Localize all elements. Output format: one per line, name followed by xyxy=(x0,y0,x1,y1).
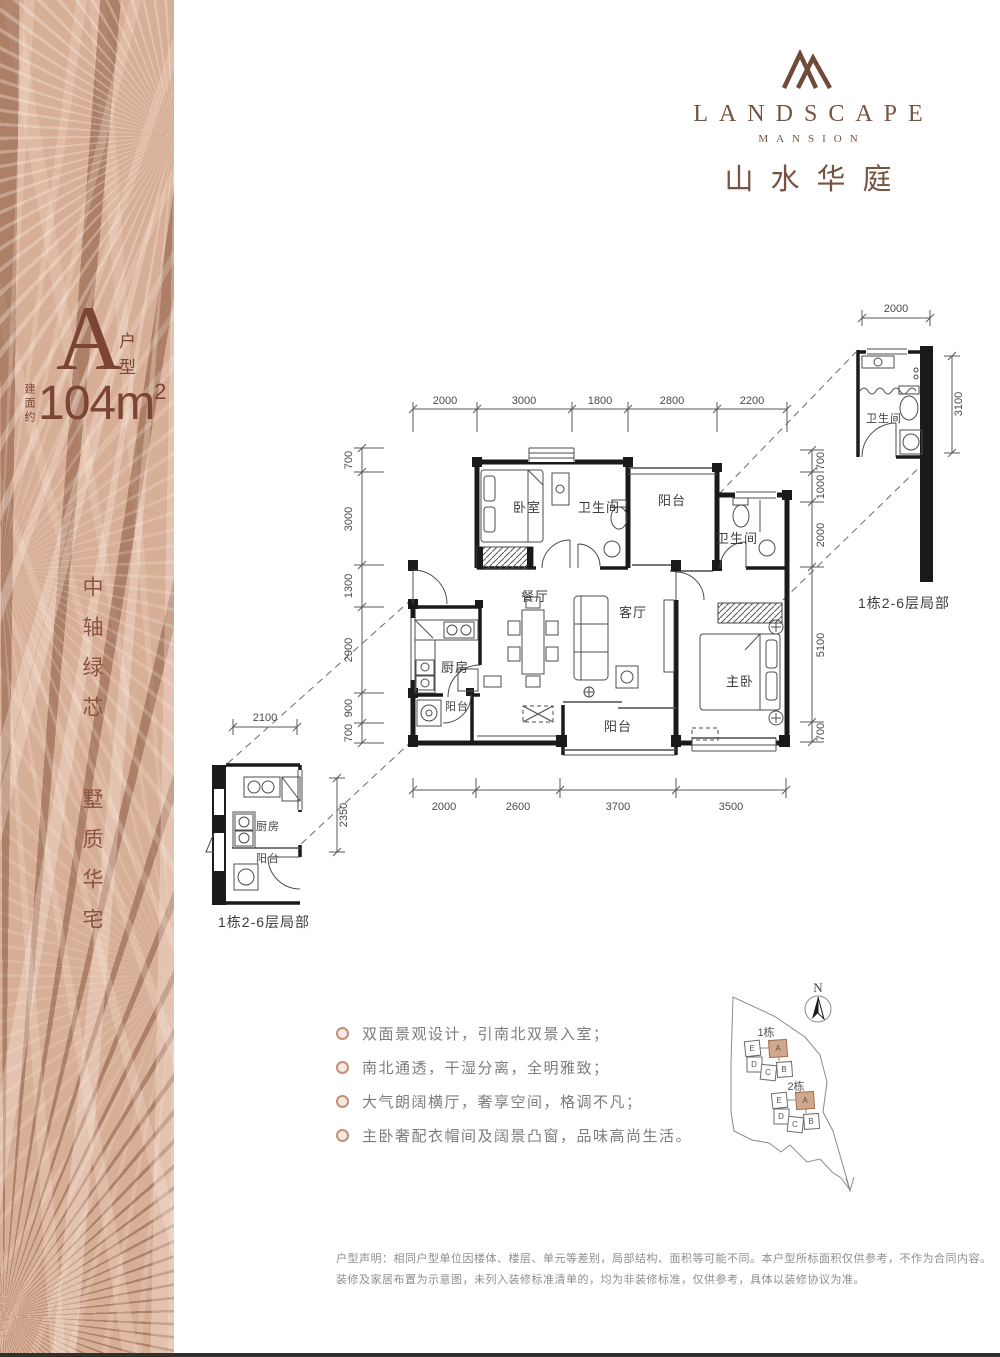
north-label: N xyxy=(813,980,823,995)
room-label-balcony-bottom: 阳台 xyxy=(604,719,632,734)
detail-kitchen: 厨房 阳台 2100 2350 1栋2-6层局部 xyxy=(206,712,350,930)
dim-label: 900 xyxy=(343,699,355,717)
dim-label: 2000 xyxy=(884,303,908,315)
dim-label: 2900 xyxy=(343,638,355,662)
feature-text: 主卧奢配衣帽间及阔景凸窗，品味高尚生活。 xyxy=(362,1125,692,1146)
dim-label: 2000 xyxy=(433,395,457,407)
dim-label: 1000 xyxy=(815,475,827,499)
north-arrow-icon xyxy=(812,997,818,1019)
dim-label: 3500 xyxy=(719,801,743,813)
detail-room-label: 卫生间 xyxy=(866,411,902,425)
dim-label: 700 xyxy=(343,451,355,469)
dimensions-right: 700 1000 2000 5100 700 xyxy=(800,446,827,746)
feature-text: 南北通透，干湿分离，全明雅致； xyxy=(362,1057,610,1078)
disclaimer-line-1: 户型声明：相同户型单位因楼体、楼层、单元等差别，局部结构、面积等可能不同。本户型… xyxy=(336,1249,998,1270)
site-map: N 1栋 E D C B A 2栋 E xyxy=(731,980,854,1191)
unit-letter-d: D xyxy=(751,1060,757,1069)
dim-label: 3000 xyxy=(512,395,536,407)
dimensions-bottom: 2000 2600 3700 3500 xyxy=(409,778,790,813)
disclaimer: 户型声明：相同户型单位因楼体、楼层、单元等差别，局部结构、面积等可能不同。本户型… xyxy=(336,1249,998,1291)
room-label-dining: 餐厅 xyxy=(521,589,549,604)
dim-label: 2000 xyxy=(432,801,456,813)
room-label-bedroom: 卧室 xyxy=(513,500,541,515)
unit-letter-b: B xyxy=(781,1065,786,1074)
feature-item: 南北通透，干湿分离，全明雅致； xyxy=(336,1050,692,1084)
detail-caption: 1栋2-6层局部 xyxy=(858,595,950,611)
feature-item: 双面景观设计，引南北双景入室； xyxy=(336,1016,692,1050)
room-labels: 卧室 卫生间 阳台 卫生间 餐厅 客厅 厨房 阳台 阳台 主卧 xyxy=(441,493,758,734)
room-label-kitchen: 厨房 xyxy=(441,660,469,675)
bottom-border xyxy=(0,1353,1000,1357)
dim-label: 700 xyxy=(343,724,355,742)
detail-room-label: 厨房 xyxy=(256,820,280,833)
feature-text: 大气朗阔横厅，奢享空间，格调不凡； xyxy=(362,1091,643,1112)
page: A 户型 建面约 104m2 中轴绿芯 墅质华宅 LANDSCAPE MANSI… xyxy=(0,0,1000,1357)
disclaimer-line-2: 装修及家居布置为示意图，未列入装修标准清单的，均为非装修标准，仅供参考，具体以装… xyxy=(336,1270,998,1291)
feature-list: 双面景观设计，引南北双景入室； 南北通透，干湿分离，全明雅致； 大气朗阔横厅，奢… xyxy=(336,1016,692,1152)
dim-label: 3100 xyxy=(953,392,965,416)
dim-label: 2200 xyxy=(740,395,764,407)
unit-letter-d: D xyxy=(778,1112,784,1121)
room-label-master: 主卧 xyxy=(726,674,754,689)
dim-label: 2600 xyxy=(506,801,530,813)
dim-label: 2800 xyxy=(660,395,684,407)
dim-label: 2100 xyxy=(253,712,277,724)
detail-bathroom: 卫生间 2000 3100 1栋2-6层局部 xyxy=(858,303,965,611)
room-label-balcony-top: 阳台 xyxy=(658,493,686,508)
unit-letter-a: A xyxy=(775,1044,781,1053)
dimensions-top: 2000 3000 1800 2800 2200 xyxy=(409,395,791,432)
bullet-icon xyxy=(336,1027,349,1040)
dimensions-left: 700 3000 1300 2900 900 700 xyxy=(343,444,384,747)
door-arcs xyxy=(413,540,746,723)
bullet-icon xyxy=(336,1095,349,1108)
dim-label: 2000 xyxy=(815,523,827,547)
unit-letter-e: E xyxy=(749,1044,754,1053)
building2-label: 2栋 xyxy=(787,1079,804,1093)
unit-letter-b: B xyxy=(808,1117,813,1126)
feature-item: 大气朗阔横厅，奢享空间，格调不凡； xyxy=(336,1084,692,1118)
feature-item: 主卧奢配衣帽间及阔景凸窗，品味高尚生活。 xyxy=(336,1118,692,1152)
floor-plan-drawing: 卧室 卫生间 阳台 卫生间 餐厅 客厅 厨房 阳台 阳台 主卧 2000 300… xyxy=(0,0,1000,1357)
building1-label: 1栋 xyxy=(757,1025,774,1039)
unit-letter-a: A xyxy=(802,1096,808,1105)
dim-label: 5100 xyxy=(815,633,827,657)
bullet-icon xyxy=(336,1061,349,1074)
unit-letter-c: C xyxy=(765,1068,771,1077)
bullet-icon xyxy=(336,1129,349,1142)
dim-label: 1300 xyxy=(343,574,355,598)
detail-connector-lines xyxy=(227,352,929,844)
feature-text: 双面景观设计，引南北双景入室； xyxy=(362,1023,610,1044)
detail-room-label: 阳台 xyxy=(256,851,280,865)
dim-label: 3700 xyxy=(606,801,630,813)
detail-caption: 1栋2-6层局部 xyxy=(218,914,310,930)
room-label-living: 客厅 xyxy=(619,605,647,620)
room-label-bath-top: 卫生间 xyxy=(578,500,620,515)
dim-label: 1800 xyxy=(588,395,612,407)
dim-label: 700 xyxy=(815,723,827,741)
unit-letter-c: C xyxy=(792,1120,798,1129)
room-label-bath-right: 卫生间 xyxy=(716,531,758,546)
unit-letter-e: E xyxy=(776,1096,781,1105)
room-label-balcony-left: 阳台 xyxy=(445,699,469,713)
dim-label: 3000 xyxy=(343,507,355,531)
dim-label: 2350 xyxy=(338,803,350,827)
dim-label: 700 xyxy=(815,452,827,470)
